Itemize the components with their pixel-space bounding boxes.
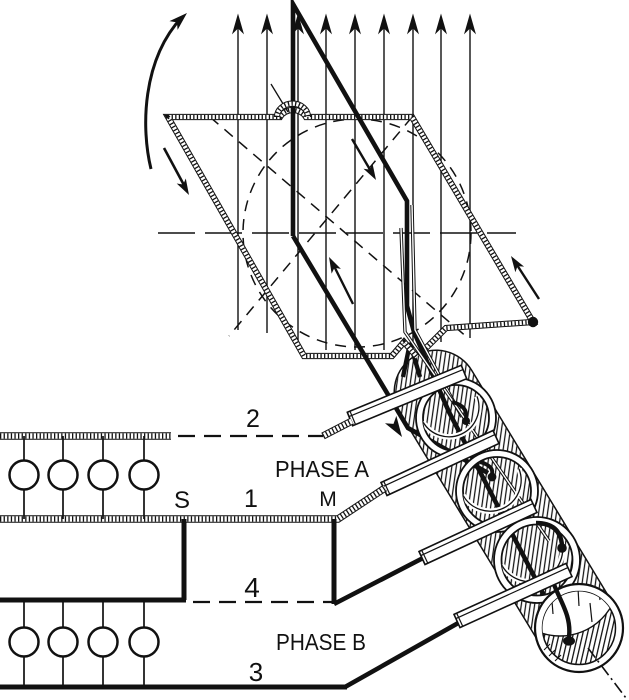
svg-text:3: 3	[249, 657, 263, 687]
svg-text:PHASE A: PHASE A	[275, 456, 370, 482]
svg-text:S: S	[174, 487, 190, 514]
svg-text:2: 2	[246, 405, 260, 433]
svg-text:1: 1	[244, 485, 258, 513]
svg-text:PHASE B: PHASE B	[276, 629, 366, 655]
svg-text:M: M	[319, 488, 337, 511]
svg-text:4: 4	[244, 572, 260, 603]
